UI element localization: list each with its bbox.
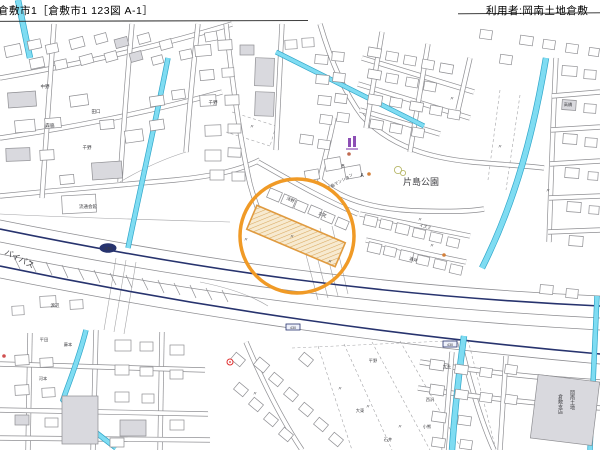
building <box>433 259 447 270</box>
building <box>411 127 424 138</box>
building <box>479 392 492 403</box>
building <box>149 119 164 131</box>
building <box>585 138 598 148</box>
building <box>205 125 221 137</box>
building <box>454 389 468 400</box>
building <box>8 91 37 108</box>
building <box>504 364 517 375</box>
building <box>314 417 329 432</box>
map-label: 森脇 <box>46 122 55 129</box>
building <box>267 188 283 202</box>
building <box>69 36 85 49</box>
building <box>40 150 55 161</box>
map-label: 千野 <box>83 144 92 151</box>
building <box>140 342 153 351</box>
building <box>140 367 153 376</box>
building <box>332 51 345 61</box>
street-fill <box>548 230 600 232</box>
building <box>269 372 284 387</box>
building <box>231 352 246 367</box>
building <box>255 58 275 87</box>
map-label: 河本 <box>39 375 48 382</box>
lot-line <box>200 282 268 306</box>
building <box>316 74 330 84</box>
street-fill <box>120 24 132 182</box>
tick <box>206 288 212 300</box>
map-label: 千野 <box>209 99 218 106</box>
building <box>15 415 29 425</box>
building <box>222 68 234 78</box>
map-label: 大東 <box>356 407 365 414</box>
building <box>232 172 245 181</box>
street-fill <box>549 196 600 198</box>
building <box>284 387 299 402</box>
building <box>562 65 578 76</box>
building <box>94 33 108 45</box>
building <box>431 411 446 423</box>
building <box>479 29 492 40</box>
building <box>40 358 53 368</box>
building <box>588 172 599 181</box>
building <box>588 47 599 56</box>
building <box>170 420 184 430</box>
building <box>115 392 129 402</box>
map-label: 西沢 <box>426 396 435 403</box>
building <box>225 95 239 105</box>
building <box>170 370 183 379</box>
building <box>324 157 342 172</box>
building <box>4 43 22 57</box>
tick <box>190 285 196 298</box>
building <box>302 38 314 48</box>
building <box>315 54 329 64</box>
building <box>228 148 241 157</box>
poi-dot <box>347 152 351 156</box>
ditto-mark: 〃 <box>397 424 402 430</box>
water-channels <box>18 0 597 450</box>
building <box>335 217 350 230</box>
field-dash <box>372 342 430 450</box>
company-building-label: 倉敷支店 <box>557 393 563 415</box>
poi-dot <box>442 253 446 257</box>
building <box>454 364 468 375</box>
building <box>499 54 512 65</box>
building <box>12 306 24 316</box>
building <box>299 402 314 417</box>
building <box>446 237 460 248</box>
field-dash <box>226 132 270 146</box>
building <box>369 119 383 130</box>
building <box>255 92 275 117</box>
building <box>409 101 423 112</box>
route-number: 430 <box>290 326 296 330</box>
ditto-mark: 〃 <box>497 144 502 150</box>
route-number: 430 <box>447 343 453 347</box>
building <box>124 129 143 143</box>
building <box>329 432 344 447</box>
building <box>540 284 554 294</box>
building <box>115 365 129 375</box>
map-label: A <box>360 173 364 179</box>
ditto-mark: 〃 <box>327 259 332 265</box>
embankment-ticks <box>14 257 228 302</box>
building <box>563 134 578 145</box>
building <box>566 288 579 298</box>
lot-line <box>114 260 126 332</box>
building <box>210 170 224 180</box>
building <box>367 94 383 106</box>
sheet-user-label: 利用者:岡南土地倉敷 <box>486 3 588 18</box>
building <box>479 367 492 378</box>
poi-dot <box>2 354 6 358</box>
building <box>54 59 68 70</box>
route-badge-rect-1: 430 <box>286 324 300 330</box>
building <box>318 95 332 105</box>
map-label: 流通会館 <box>79 203 97 210</box>
building <box>45 418 58 427</box>
building <box>91 161 122 180</box>
building <box>569 236 584 247</box>
building <box>60 174 75 184</box>
tick <box>222 290 228 302</box>
building <box>79 53 94 65</box>
building <box>589 206 600 215</box>
lot-line <box>0 214 230 222</box>
sheet-title: 倉敷市1［倉敷市1 123図 A-1］ <box>0 3 153 18</box>
building <box>336 112 349 123</box>
map-label: 平田 <box>40 337 48 343</box>
building <box>285 40 297 50</box>
park-label: 片島公園 <box>403 176 439 187</box>
ditto-mark: 〃 <box>545 188 550 194</box>
building <box>333 72 346 82</box>
building <box>530 374 599 445</box>
building <box>142 394 154 403</box>
tick <box>158 280 164 293</box>
building <box>264 412 279 427</box>
building <box>403 55 416 66</box>
lot-line <box>124 262 136 334</box>
building <box>504 394 517 405</box>
building <box>249 397 264 412</box>
building <box>429 105 442 116</box>
building <box>200 69 215 80</box>
building <box>45 43 59 54</box>
building <box>234 382 249 397</box>
building <box>519 35 533 46</box>
building <box>195 44 212 56</box>
tick <box>174 283 180 295</box>
building <box>205 150 221 161</box>
building <box>405 77 418 88</box>
monument-icon <box>346 136 358 149</box>
building <box>171 89 185 100</box>
building <box>62 396 98 444</box>
park-tree-icon <box>394 166 405 175</box>
building <box>367 69 381 80</box>
building <box>159 39 173 51</box>
building <box>334 93 347 103</box>
building <box>70 300 83 310</box>
route-number: 430 <box>104 246 112 251</box>
building <box>42 388 55 398</box>
building <box>319 114 332 125</box>
building <box>429 384 444 396</box>
ditto-mark: 〃 <box>252 391 257 397</box>
building <box>15 355 30 366</box>
street-fill <box>552 92 600 96</box>
tick <box>142 278 148 290</box>
building <box>567 202 582 213</box>
map-label: 中野 <box>41 83 50 90</box>
ditto-mark: 〃 <box>337 386 342 392</box>
building <box>429 232 443 243</box>
building <box>385 51 398 62</box>
building <box>542 39 555 50</box>
building <box>69 94 88 107</box>
building <box>6 148 30 162</box>
street-fill <box>186 24 198 152</box>
building <box>447 109 460 120</box>
map-label: 渡辺 <box>51 302 60 309</box>
building <box>367 47 381 58</box>
building <box>104 51 118 63</box>
map-canvas: 〃〃〃〃〃〃〃〃〃〃〃〃〃 片島公園バイパス片島マンションAB中野森脇千野千野田… <box>0 0 600 450</box>
channel-water <box>276 52 424 126</box>
building <box>459 439 472 450</box>
building <box>317 139 330 150</box>
ditto-mark: 〃 <box>449 96 454 102</box>
map-label: 石井 <box>384 436 392 443</box>
poi-circle-marker <box>227 359 233 365</box>
building <box>228 124 241 133</box>
tick <box>94 270 100 283</box>
building <box>170 345 184 355</box>
poi-dot <box>367 172 371 176</box>
building <box>389 97 402 108</box>
building <box>294 200 309 213</box>
bypass-lane-line <box>0 266 600 354</box>
map-label: 田口 <box>92 109 101 115</box>
building <box>15 119 36 133</box>
building <box>584 104 597 114</box>
route-badge-oval: 430 <box>100 243 117 253</box>
building <box>412 228 426 239</box>
ditto-mark: 〃 <box>243 237 248 243</box>
route-badge-rect-2: 430 <box>443 341 457 347</box>
header-rule-left <box>0 21 308 22</box>
street-fill <box>160 332 162 450</box>
building <box>29 57 45 70</box>
building <box>151 55 164 66</box>
tick <box>126 275 132 288</box>
map-label: 高橋 <box>564 101 573 108</box>
building <box>110 438 124 447</box>
ditto-mark: 〃 <box>249 124 254 130</box>
building <box>565 43 578 54</box>
building <box>299 134 313 145</box>
map-label: 藤本 <box>64 341 73 348</box>
company-building-label: 岡南土地 <box>569 390 575 410</box>
map-label: 平野 <box>369 357 378 364</box>
building <box>299 352 314 367</box>
map-label: 大社 <box>443 363 451 370</box>
building <box>149 95 164 107</box>
map-label: 小熊 <box>423 423 431 430</box>
building <box>120 420 146 436</box>
street-fill <box>458 58 470 110</box>
building <box>385 73 398 84</box>
building <box>137 33 151 45</box>
ditto-mark: 〃 <box>289 234 294 240</box>
map-label: 酒井 <box>408 255 418 264</box>
building <box>204 31 217 42</box>
building <box>240 45 254 55</box>
building <box>15 385 30 396</box>
building <box>457 415 471 426</box>
building <box>423 81 436 92</box>
building <box>115 340 131 351</box>
building <box>431 437 445 448</box>
building <box>218 40 233 51</box>
ditto-mark: 〃 <box>429 243 434 249</box>
building <box>100 119 115 129</box>
lot-line <box>104 258 116 330</box>
building <box>449 264 463 275</box>
building <box>439 63 453 74</box>
building <box>179 49 193 60</box>
building <box>114 36 129 48</box>
map-sheet: 〃〃〃〃〃〃〃〃〃〃〃〃〃 片島公園バイパス片島マンションAB中野森脇千野千野田… <box>0 0 600 450</box>
building <box>565 168 580 179</box>
ditto-mark: 〃 <box>365 404 370 410</box>
building <box>584 70 597 80</box>
building <box>421 59 434 70</box>
building <box>389 123 402 134</box>
